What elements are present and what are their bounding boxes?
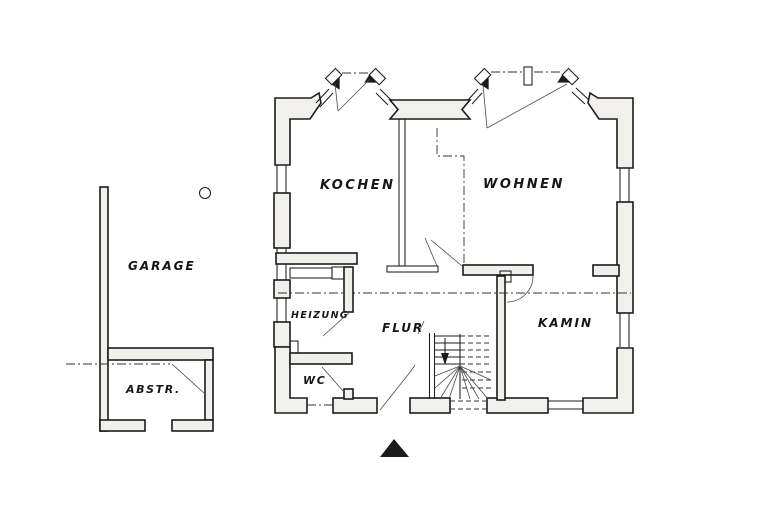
room-label-abstellraum: ABSTR. xyxy=(125,383,181,396)
window-corner-symbol xyxy=(363,69,386,92)
circle-marker xyxy=(200,188,211,199)
entrance-triangle-marker xyxy=(380,439,409,457)
kamin-wall-stub xyxy=(593,265,619,276)
corner-wall-top-left xyxy=(275,93,321,165)
stair-direction-arrow xyxy=(441,353,449,365)
corner-wall-bottom-right xyxy=(583,348,633,413)
corner-wall-top-right xyxy=(588,93,633,168)
window-mullion-post xyxy=(524,67,532,85)
stair-kamin-wall xyxy=(497,276,505,400)
garage-abstellraum-divider-wall xyxy=(108,348,213,360)
heizung-right-wall xyxy=(344,267,353,312)
room-label-heizung: HEIZUNG xyxy=(291,310,349,321)
bottom-wall xyxy=(307,389,583,413)
wc-door-jamb xyxy=(290,341,298,353)
room-label-flur: FLUR xyxy=(382,321,424,335)
room-label-garage: GARAGE xyxy=(128,259,196,273)
chimney-dashed-outline xyxy=(437,128,464,266)
door-swing xyxy=(425,238,437,266)
divider-foot-wall xyxy=(387,266,438,272)
floorplan-drawing: GARAGE ABSTR. KOCHEN WOHNEN HEIZUNG FLUR… xyxy=(0,0,767,514)
room-label-kochen: KOCHEN xyxy=(320,178,395,193)
room-label-kamin: KAMIN xyxy=(538,316,593,330)
entrance xyxy=(380,321,424,457)
bay-projection-line xyxy=(487,84,567,128)
floorplan-sheet: GARAGE ABSTR. KOCHEN WOHNEN HEIZUNG FLUR… xyxy=(0,0,767,514)
staircase xyxy=(430,333,492,399)
entrance-door-swing xyxy=(380,371,411,410)
entrance-door-tick xyxy=(411,365,415,371)
right-wall xyxy=(583,168,633,413)
heizung-door-leaf xyxy=(290,268,332,278)
bay-projection-line xyxy=(338,79,370,111)
wc-top-wall xyxy=(290,353,352,364)
interior-walls xyxy=(276,119,631,400)
kochen-bottom-wall xyxy=(276,253,357,264)
bay-projection-line xyxy=(483,85,487,128)
abstellraum-right-wall xyxy=(205,360,213,420)
kochen-wohnen-divider xyxy=(399,119,405,266)
wohnen-kamin-divider xyxy=(463,265,533,275)
room-labels: GARAGE ABSTR. KOCHEN WOHNEN HEIZUNG FLUR… xyxy=(125,177,593,396)
abstellraum-bottom-wall-right xyxy=(172,420,213,431)
garage-left-wall xyxy=(100,187,108,431)
window-corner-symbol xyxy=(326,69,349,92)
abstellraum-bottom-wall-left xyxy=(100,420,145,431)
door-hinge-block xyxy=(332,267,344,279)
top-middle-wall xyxy=(390,100,470,119)
stair-winder-fan xyxy=(435,366,491,399)
room-label-wc: WC xyxy=(303,374,326,387)
room-label-wohnen: WOHNEN xyxy=(483,177,565,192)
